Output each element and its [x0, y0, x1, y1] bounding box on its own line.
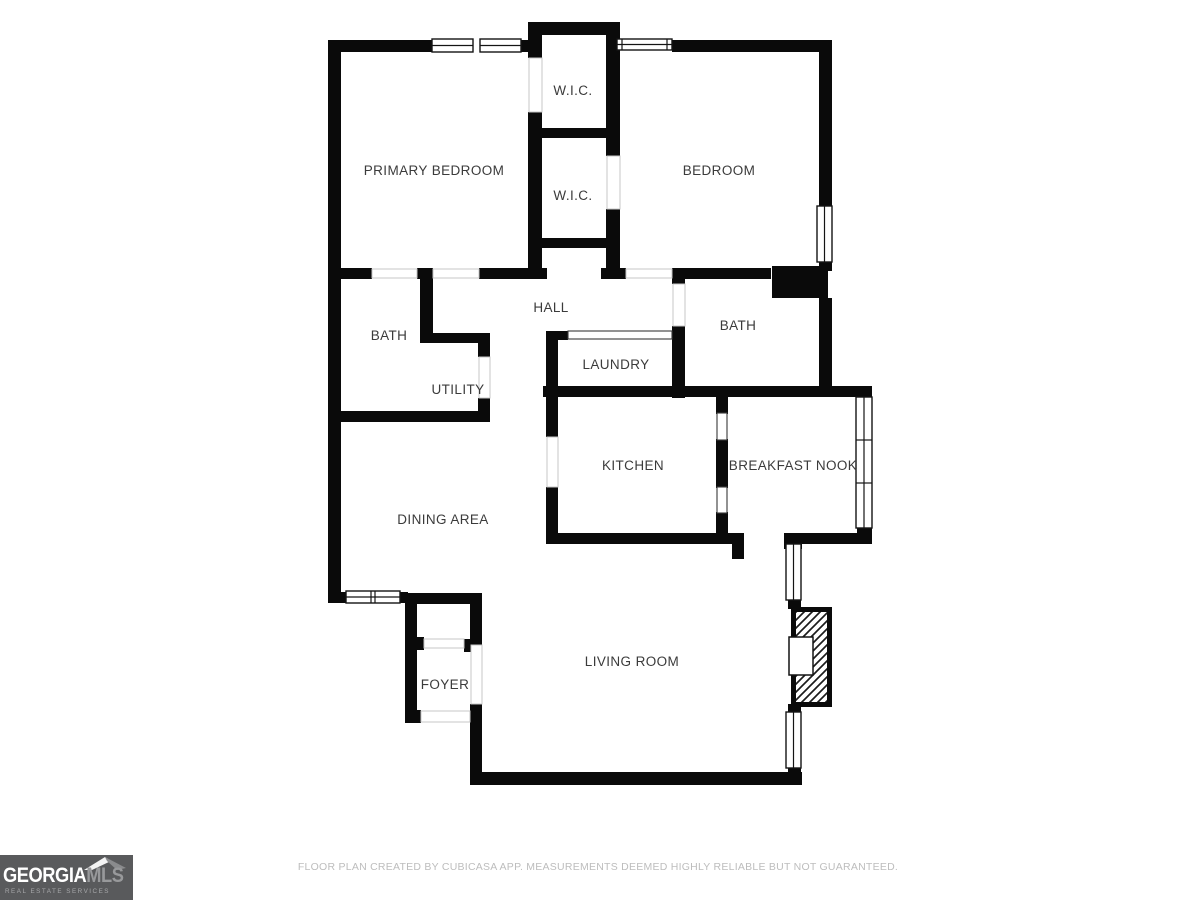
logo-brand-secondary: MLS [86, 864, 123, 887]
opening-foyer-living [471, 645, 482, 704]
kitchen-pass-lower [717, 487, 727, 513]
room-label-dining-area: DINING AREA [397, 512, 488, 527]
room-label-hall: HALL [533, 300, 568, 315]
room-label-kitchen: KITCHEN [602, 458, 664, 473]
window-dining [346, 591, 400, 603]
door-primary-bedroom [433, 269, 479, 278]
window-bedroom-top [617, 39, 672, 50]
logo-brand-primary: GEORGIA [3, 864, 86, 887]
window-breakfast-nook [856, 397, 872, 528]
fireplace-opening [789, 637, 813, 675]
floor-plan: W.I.C. PRIMARY BEDROOM W.I.C. BEDROOM BA… [0, 0, 1200, 900]
door-bedroom [626, 269, 672, 278]
room-label-wic-2: W.I.C. [553, 188, 592, 203]
entry-door [421, 711, 470, 722]
door-wic-2 [607, 156, 620, 209]
foyer-closet-door [424, 639, 464, 648]
fireplace [789, 607, 832, 707]
room-label-wic-1: W.I.C. [553, 83, 592, 98]
window-living-upper [786, 544, 801, 600]
room-label-laundry: LAUNDRY [582, 357, 649, 372]
door-wic-1 [529, 58, 542, 112]
window-bedroom-right [817, 206, 832, 262]
logo-brand: GEORGIAMLS [3, 864, 124, 887]
window-living-lower [786, 712, 801, 768]
georgia-mls-logo: GEORGIAMLS REAL ESTATE SERVICES [0, 855, 133, 900]
laundry-door [568, 331, 672, 339]
room-label-primary-bedroom: PRIMARY BEDROOM [364, 163, 505, 178]
floor-plan-drawing: W.I.C. PRIMARY BEDROOM W.I.C. BEDROOM BA… [0, 0, 1200, 900]
room-label-bedroom: BEDROOM [683, 163, 756, 178]
door-kitchen [547, 437, 558, 487]
room-label-bath-left: BATH [371, 328, 408, 343]
logo-tagline: REAL ESTATE SERVICES [5, 888, 110, 895]
shower-block [772, 266, 828, 298]
room-label-foyer: FOYER [421, 677, 470, 692]
room-label-breakfast-nook: BREAKFAST NOOK [729, 458, 857, 473]
window-primary-bedroom [432, 39, 521, 52]
room-label-utility: UTILITY [431, 382, 484, 397]
room-label-bath-right: BATH [720, 318, 757, 333]
room-label-living-room: LIVING ROOM [585, 654, 679, 669]
disclaimer-text: FLOOR PLAN CREATED BY CUBICASA APP. MEAS… [0, 861, 1196, 873]
door-bath-right [673, 284, 685, 326]
door-ensuite-bath [372, 269, 417, 278]
kitchen-pass-upper [717, 413, 727, 440]
